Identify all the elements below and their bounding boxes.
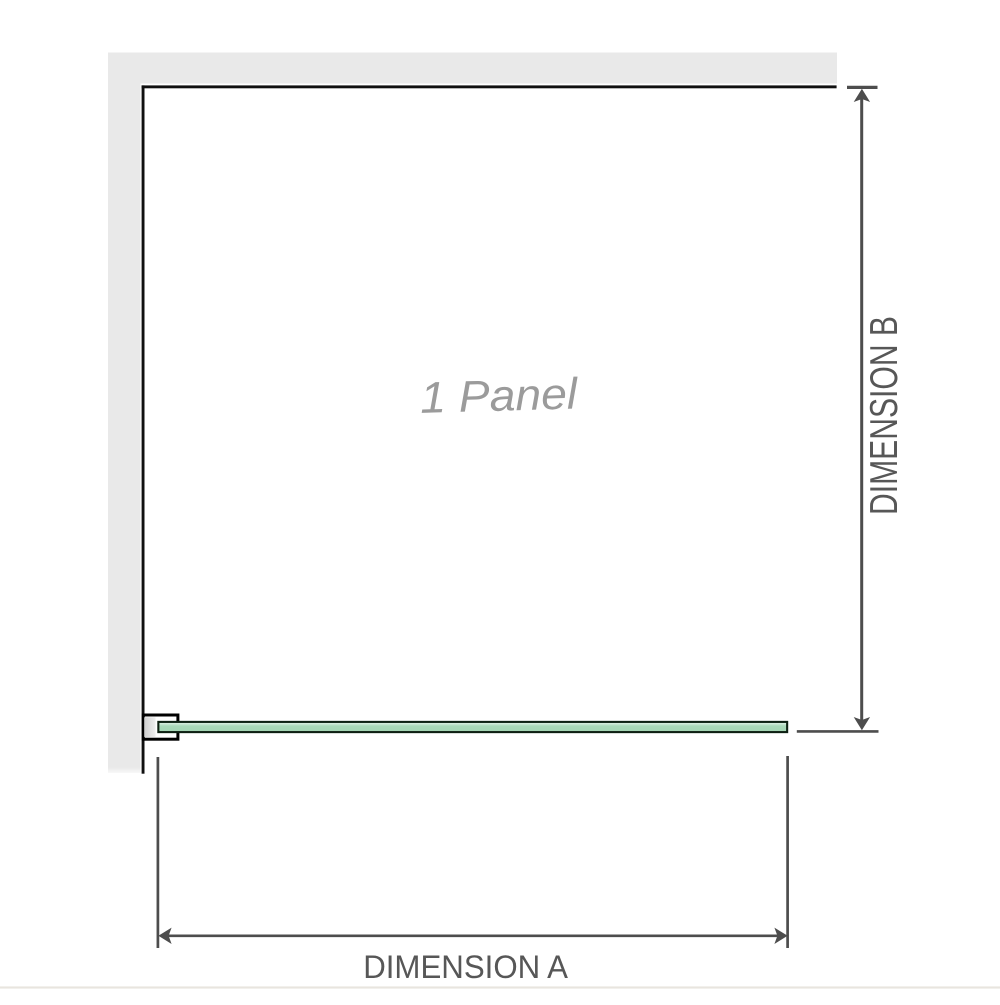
- svg-text:DIMENSION A: DIMENSION A: [363, 948, 568, 985]
- svg-text:1 Panel: 1 Panel: [419, 369, 579, 422]
- svg-text:DIMENSION B: DIMENSION B: [863, 316, 906, 515]
